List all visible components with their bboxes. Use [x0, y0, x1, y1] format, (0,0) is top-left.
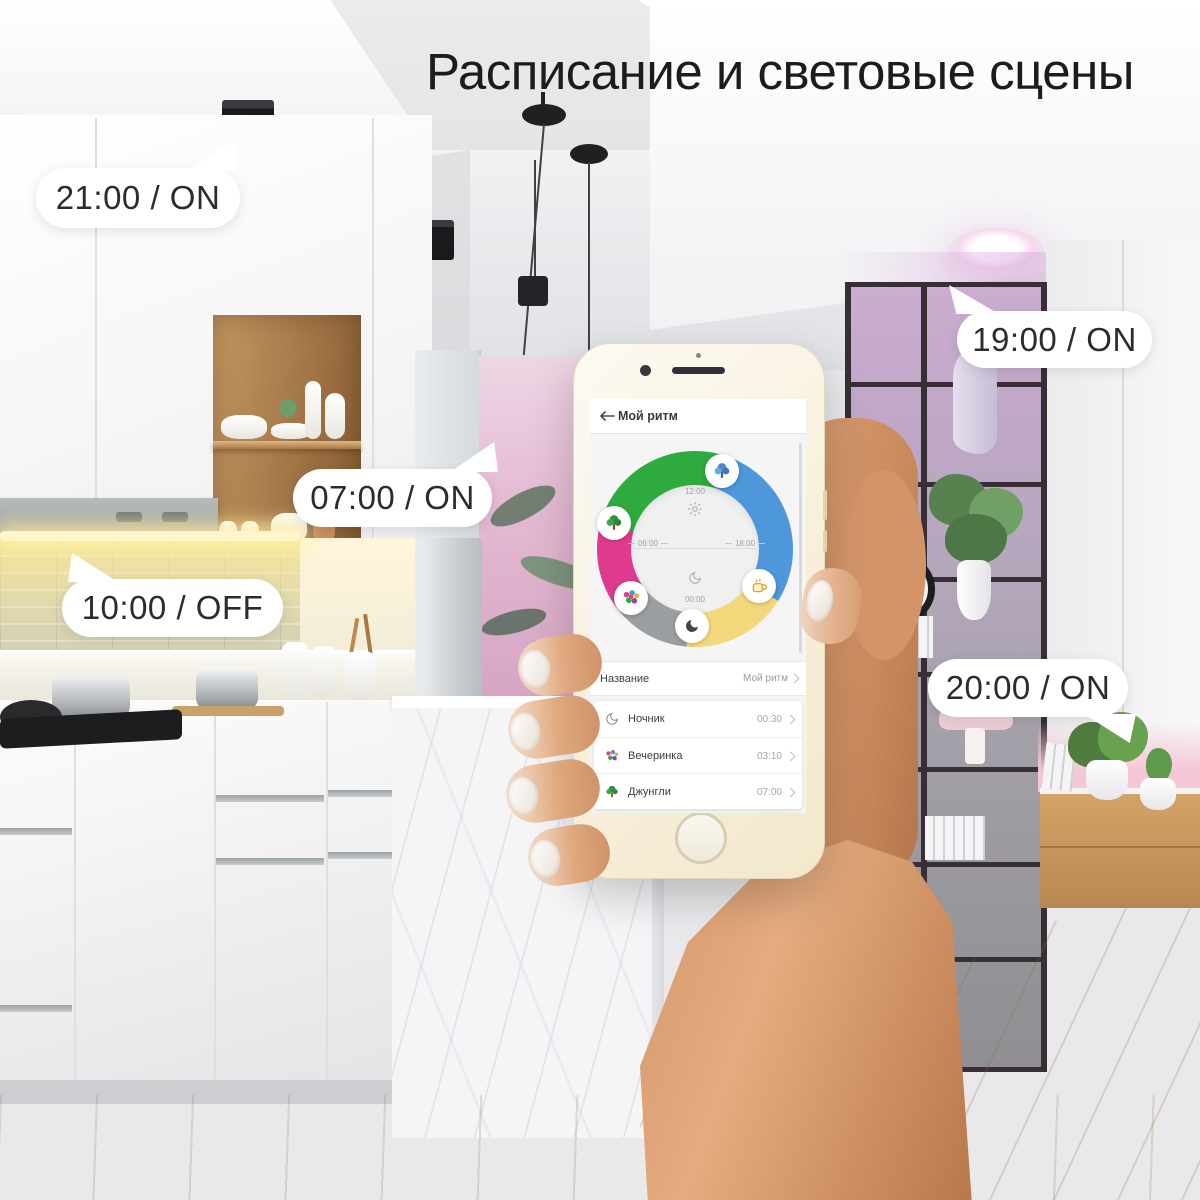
fridge — [424, 538, 482, 706]
scene-row-party[interactable]: Вечеринка 03:10 — [594, 737, 802, 774]
shelf — [213, 441, 361, 449]
chevron-right-icon — [790, 674, 800, 684]
hood-vent — [162, 512, 188, 522]
wheel-axis-line — [633, 548, 757, 549]
scene-marker-jungle[interactable] — [597, 506, 631, 540]
fingernail — [518, 648, 554, 690]
scene-row-night-light[interactable]: Ночник 00:30 — [594, 701, 802, 737]
palm-leaf — [485, 478, 561, 535]
back-arrow-icon[interactable] — [599, 410, 615, 422]
cabinet-seam — [74, 702, 76, 1082]
scene: Расписание и световые сцены Мой ритм 12 — [0, 0, 1200, 1200]
tick-mark — [758, 543, 765, 544]
drawer-handle — [216, 795, 324, 802]
blue-plant-icon — [713, 462, 731, 480]
vase — [305, 381, 321, 439]
wheel-label-evening-text: 18:00 — [735, 539, 755, 548]
rhythm-wheel[interactable]: 12:00 06:00 — [597, 451, 793, 647]
phone-home-button[interactable] — [675, 812, 727, 864]
hood-vent — [116, 512, 142, 522]
bowl — [221, 415, 267, 439]
books — [925, 816, 985, 860]
page-title: Расписание и световые сцены — [410, 42, 1150, 101]
scene-time: 07:00 — [757, 787, 782, 798]
tick-mark — [661, 543, 668, 544]
canister — [282, 642, 308, 698]
sideboard — [1040, 788, 1200, 908]
pendant-canopy — [570, 144, 608, 164]
canister — [312, 646, 336, 696]
plant-vase — [957, 560, 991, 620]
jungle-tree-icon — [604, 784, 620, 800]
wheel-label-midnight-text: 00:00 — [685, 595, 705, 604]
fingernail — [803, 578, 836, 624]
name-value: Мой ритм — [743, 673, 788, 684]
pendant-cord — [534, 160, 536, 278]
phone-screen: Мой ритм 12:00 — [590, 399, 806, 813]
callout-label: 19:00 / ON — [972, 321, 1137, 359]
wood-floor — [0, 1095, 1200, 1200]
wheel-label-morning: 06:00 — [612, 539, 684, 548]
scene-marker-party[interactable] — [614, 581, 648, 615]
tick-mark — [725, 543, 732, 544]
callout-label: 07:00 / ON — [310, 479, 475, 517]
palm-leaf — [479, 603, 548, 640]
wheel-label-morning-text: 06:00 — [638, 539, 658, 548]
drawer-handle — [0, 828, 72, 835]
cutting-board — [172, 706, 284, 716]
scene-name: Ночник — [628, 713, 665, 725]
table-lamp — [965, 728, 985, 764]
fingernail — [506, 775, 542, 817]
callout-21-00: 21:00 / ON — [36, 168, 240, 228]
utensil-crock — [344, 652, 376, 698]
chevron-right-icon — [786, 787, 796, 797]
tick-mark — [628, 543, 635, 544]
moon-icon — [684, 618, 700, 634]
cabinet-seam — [214, 702, 216, 1082]
cylinder-pendant-lamp — [518, 276, 548, 306]
moon-icon — [604, 711, 620, 727]
chevron-right-icon — [786, 751, 796, 761]
houseplant — [945, 514, 1007, 564]
cooking-pot — [196, 670, 258, 710]
callout-label: 10:00 / OFF — [82, 589, 264, 627]
shelf — [845, 282, 1047, 287]
shelf — [845, 382, 1047, 387]
scene-marker-blue-plant[interactable] — [705, 454, 739, 488]
pendant-cord — [588, 162, 590, 374]
pendant-canopy — [522, 104, 566, 126]
scene-name: Вечеринка — [628, 750, 682, 762]
chevron-right-icon — [786, 714, 796, 724]
hand-knuckles — [842, 470, 926, 660]
base-cabinets — [0, 700, 432, 1095]
callout-19-00: 19:00 / ON — [957, 311, 1152, 368]
app-title: Мой ритм — [618, 409, 678, 423]
plant-sprig — [279, 399, 297, 417]
fingernail — [528, 838, 564, 880]
drawer-handle — [0, 1005, 72, 1012]
callout-label: 20:00 / ON — [946, 669, 1111, 707]
phone-front-camera — [640, 365, 651, 376]
callout-20-00: 20:00 / ON — [928, 659, 1128, 717]
drawer-handle — [216, 858, 324, 865]
wheel-label-evening: 18:00 — [709, 539, 781, 548]
scene-name: Джунгли — [628, 786, 671, 798]
callout-label: 21:00 / ON — [56, 179, 221, 217]
callout-10-00: 10:00 / OFF — [62, 579, 283, 637]
app-header: Мой ритм — [590, 399, 806, 434]
callout-07-00: 07:00 / ON — [293, 469, 492, 527]
cabinet-seam — [326, 702, 328, 1082]
party-icon — [604, 748, 620, 764]
plant-pot — [1140, 778, 1176, 810]
wheel-label-noon: 12:00 — [665, 487, 725, 496]
name-label: Название — [600, 673, 649, 685]
scene-marker-morning[interactable] — [742, 569, 776, 603]
phone-mic-dot — [696, 353, 701, 358]
jungle-tree-icon — [605, 514, 623, 532]
rhythm-name-row[interactable]: Название Мой ритм — [590, 661, 806, 696]
scene-time: 00:30 — [757, 714, 782, 725]
smartphone: Мой ритм 12:00 — [573, 343, 825, 879]
phone-side-button[interactable] — [823, 490, 827, 520]
moon-icon — [688, 571, 702, 585]
wheel-label-midnight: 00:00 — [665, 595, 725, 604]
phone-side-button[interactable] — [823, 530, 827, 552]
scene-list: Ночник 00:30 Вечеринка 03:10 — [594, 701, 802, 809]
phone-speaker — [672, 367, 725, 374]
mug-icon — [750, 577, 768, 595]
plant-pot — [1086, 760, 1128, 800]
wheel-label-noon-text: 12:00 — [685, 487, 705, 496]
party-icon — [622, 589, 640, 607]
sideboard-drawer — [1040, 846, 1200, 848]
scene-row-jungle[interactable]: Джунгли 07:00 — [594, 773, 802, 810]
scene-time: 03:10 — [757, 751, 782, 762]
scene-marker-night[interactable] — [675, 609, 709, 643]
sun-icon — [687, 501, 703, 517]
led-strip-light — [0, 531, 300, 541]
fingernail — [508, 710, 544, 752]
cactus — [1146, 748, 1172, 782]
vase — [325, 393, 345, 439]
